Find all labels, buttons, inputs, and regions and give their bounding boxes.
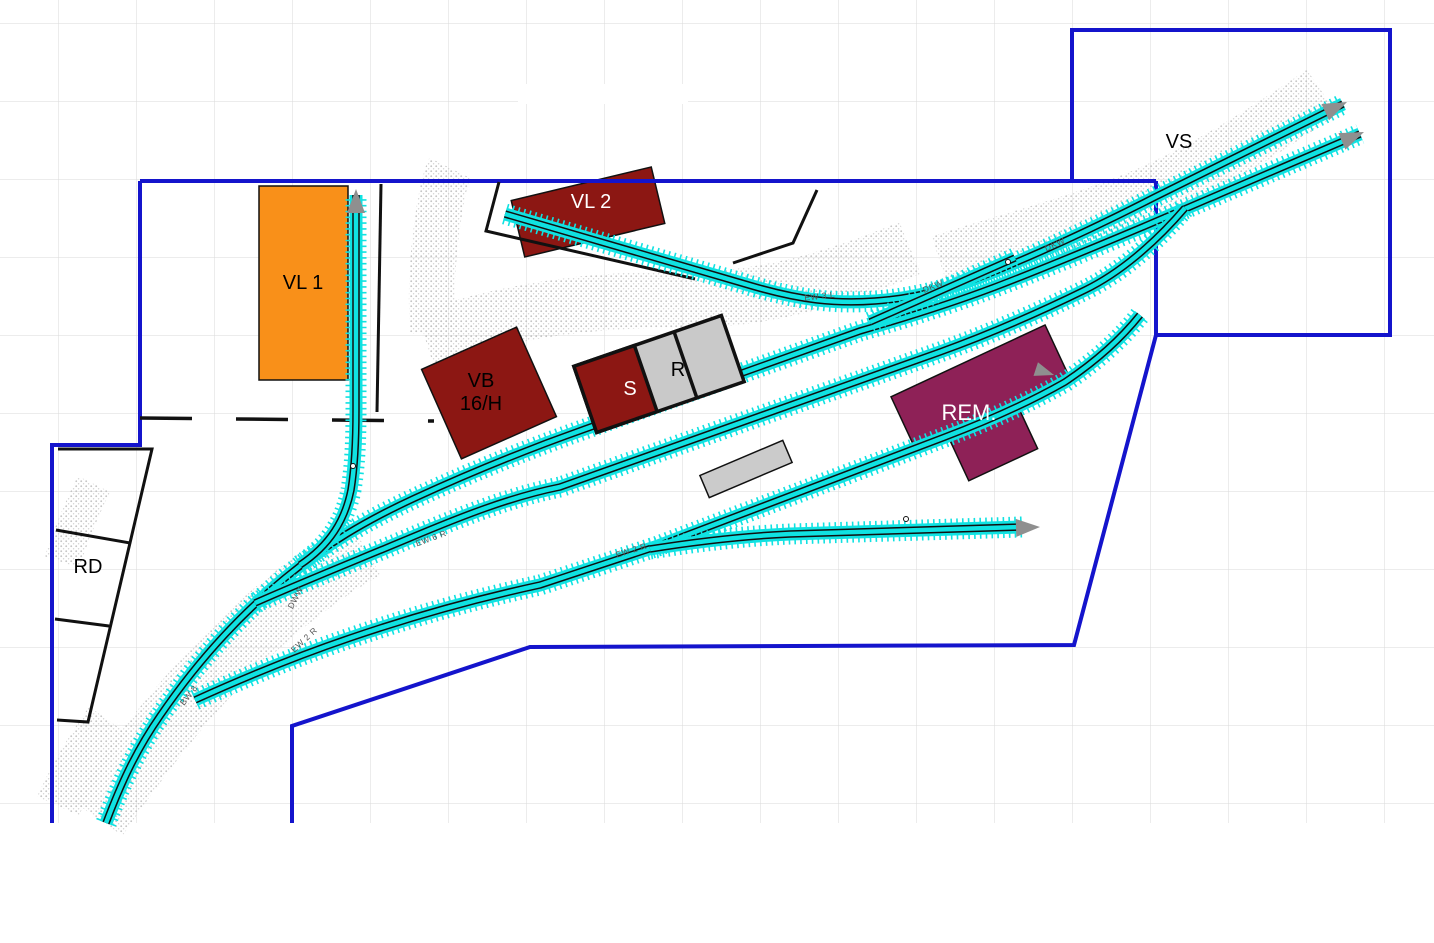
switch-marker <box>351 464 356 469</box>
track-plan-page: VS RD VL 1 VL 2 VB 16/H S R REM. BW 8 DW… <box>0 0 1434 943</box>
label-vl1[interactable]: VL 1 <box>283 272 323 294</box>
switch-marker <box>904 517 909 522</box>
track-plan-canvas: VS RD VL 1 VL 2 VB 16/H S R REM. BW 8 DW… <box>0 0 1434 943</box>
label-rd[interactable]: RD <box>74 556 103 578</box>
erased-label-patch <box>518 84 688 104</box>
label-vl2[interactable]: VL 2 <box>571 191 611 213</box>
switch-marker <box>1006 260 1011 265</box>
label-rem[interactable]: REM. <box>942 400 997 425</box>
label-vb-line1[interactable]: VB <box>468 370 495 392</box>
label-r[interactable]: R <box>671 359 685 381</box>
label-s[interactable]: S <box>623 378 636 400</box>
label-vs[interactable]: VS <box>1166 131 1193 153</box>
label-vb-line2[interactable]: 16/H <box>460 393 502 415</box>
